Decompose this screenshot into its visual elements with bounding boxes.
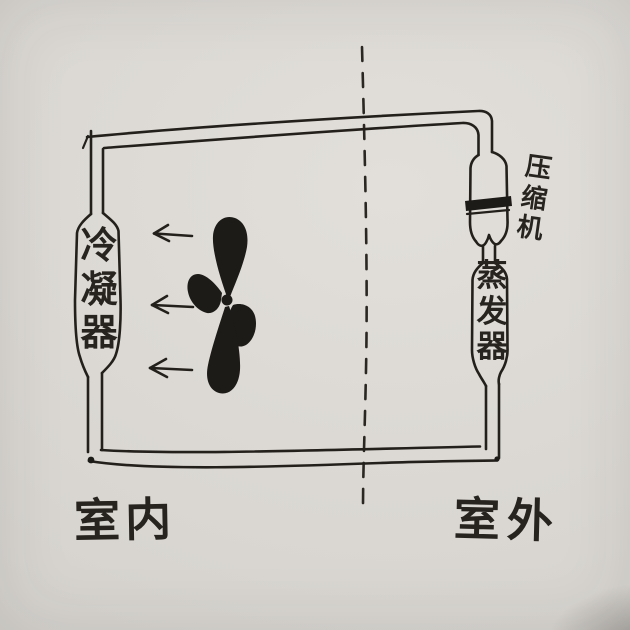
airflow-arrow <box>150 359 192 377</box>
indoor-zone-label: 室内 <box>73 483 176 551</box>
compressor-piston-band <box>465 196 512 211</box>
fan-icon <box>187 217 256 394</box>
airflow-arrow <box>154 225 192 241</box>
evaporator-label: 蒸发器 <box>474 259 510 366</box>
solder-dot <box>88 457 95 464</box>
outdoor-zone-label: 室外 <box>453 483 561 552</box>
solder-dot <box>494 456 499 461</box>
compressor-shape <box>465 152 512 246</box>
airflow-arrow <box>152 296 193 313</box>
paper-sketch-canvas: 冷凝器 压缩机 蒸发器 室内 室外 <box>0 0 630 630</box>
pipe-loop <box>83 111 500 467</box>
airflow-arrows <box>150 225 193 377</box>
condenser-label: 冷凝器 <box>77 224 121 355</box>
